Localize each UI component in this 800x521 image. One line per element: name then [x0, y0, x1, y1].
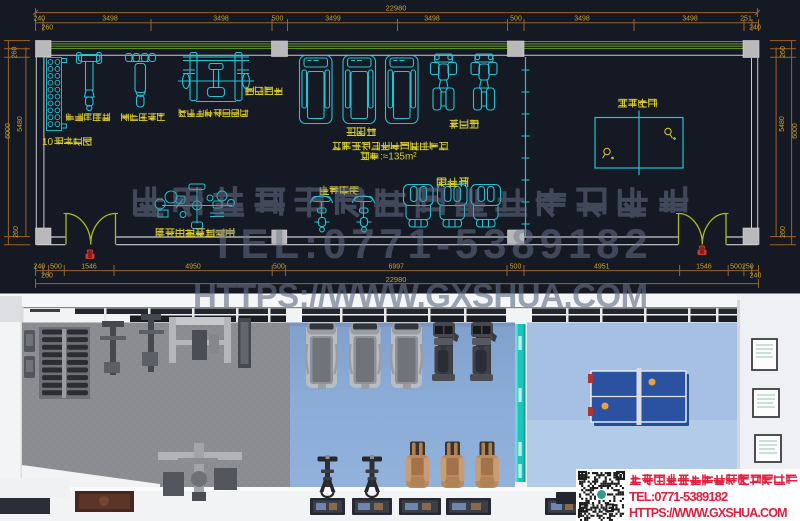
svg-text:240: 240: [750, 273, 762, 280]
svg-text:1546: 1546: [696, 263, 712, 270]
svg-text:240: 240: [33, 16, 45, 23]
svg-text:251: 251: [740, 16, 752, 23]
svg-text:250: 250: [742, 263, 754, 270]
svg-text:22980: 22980: [386, 4, 407, 13]
svg-text:260: 260: [780, 46, 787, 58]
svg-text:3498: 3498: [424, 16, 440, 23]
svg-text:260: 260: [12, 47, 19, 59]
svg-text:5480: 5480: [779, 116, 786, 132]
svg-text:4950: 4950: [185, 263, 201, 270]
svg-text:HTTPS://WWW.GXSHUA.COM: HTTPS://WWW.GXSHUA.COM: [629, 506, 787, 520]
svg-text:260: 260: [41, 25, 53, 32]
svg-text:6000: 6000: [5, 123, 12, 139]
svg-text::≈135m²: :≈135m²: [380, 152, 417, 163]
svg-text:3498: 3498: [102, 16, 118, 23]
svg-text:260: 260: [780, 226, 787, 238]
svg-text:10: 10: [42, 137, 54, 148]
svg-text:260: 260: [13, 226, 20, 238]
svg-text:1546: 1546: [81, 263, 97, 270]
svg-text:500: 500: [50, 263, 62, 270]
svg-text:240: 240: [749, 25, 761, 32]
svg-text:3498: 3498: [682, 16, 698, 23]
svg-text:TEL:0771-5389182: TEL:0771-5389182: [210, 220, 653, 267]
svg-text:500: 500: [272, 16, 284, 23]
svg-text:3498: 3498: [213, 16, 229, 23]
svg-text:240: 240: [33, 263, 45, 270]
svg-text:260: 260: [41, 273, 53, 280]
svg-text:3498: 3498: [574, 16, 590, 23]
svg-text:6000: 6000: [792, 123, 799, 139]
svg-text:5480: 5480: [17, 116, 24, 132]
svg-text:500: 500: [730, 263, 742, 270]
svg-text:TEL:0771-5389182: TEL:0771-5389182: [629, 489, 728, 504]
svg-text:3499: 3499: [325, 16, 341, 23]
svg-text:500: 500: [510, 16, 522, 23]
